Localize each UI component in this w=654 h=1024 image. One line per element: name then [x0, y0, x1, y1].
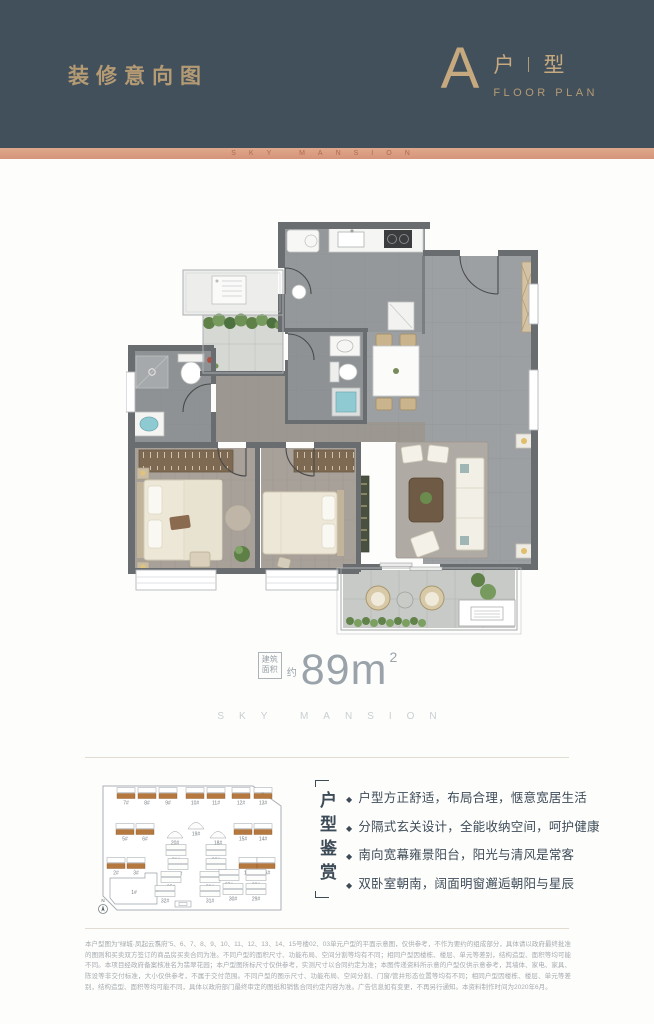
feature-text: 南向宽幕雍景阳台，阳光与清风是常客 [358, 847, 574, 865]
site-building-label: 14# [259, 837, 268, 843]
site-building-label: 11# [212, 801, 220, 807]
site-building-label: 5# [122, 837, 128, 843]
feature-text: 分隔式玄关设计，全能收纳空间，呵护健康 [358, 819, 599, 837]
site-building-label: 31# [206, 899, 215, 905]
feature-list: ◆户型方正舒适，布局合理，惬意宽居生活 ◆分隔式玄关设计，全能收纳空间，呵护健康… [346, 780, 570, 893]
site-building-label: 8# [144, 801, 150, 807]
features-title-text: 户型鉴赏 [314, 791, 339, 887]
site-building-label: 1# [131, 890, 137, 896]
brand-watermark: SKY MANSION [0, 711, 654, 722]
area-label-line1: 建筑 [262, 655, 278, 665]
header: 装修意向图 A 户 型 FLOOR PLAN [0, 0, 654, 148]
bracket-bottom-icon [315, 891, 329, 898]
site-building-label: 7# [123, 801, 129, 807]
site-building-label: 2# [113, 871, 119, 877]
site-building-label: 10# [191, 801, 200, 807]
plan-char-right: 型 [543, 49, 564, 79]
diamond-bullet-icon: ◆ [346, 880, 352, 891]
site-building-label: 15# [239, 837, 248, 843]
bracket-top-icon [315, 780, 329, 787]
poster-page: 装修意向图 A 户 型 FLOOR PLAN SKY MANSION [0, 0, 654, 1024]
area-value: 89m2 [301, 652, 396, 689]
plan-char-left: 户 [493, 49, 514, 79]
site-building-label: 3# [133, 871, 139, 877]
area-number: 89 [301, 646, 351, 694]
site-building-label: 29# [252, 897, 261, 903]
area-label-line2: 面积 [262, 665, 278, 675]
site-building-label: 6# [142, 837, 148, 843]
plan-type-row: 户 型 [493, 49, 598, 79]
divider-bottom [85, 928, 569, 929]
brand-band-text: SKY MANSION [0, 148, 654, 159]
feature-item: ◆分隔式玄关设计，全能收纳空间，呵护健康 [346, 819, 570, 837]
feature-item: ◆双卧室朝南，阔面明窗邂逅朝阳与星辰 [346, 876, 570, 894]
disclaimer-text: 本户型图为“绿城·凤起云翥府”5、6、7、8、9、10、11、12、13、14、… [85, 940, 571, 994]
site-building: 1# [110, 873, 157, 904]
area-approx-label: 约 [287, 664, 297, 679]
site-building-label: 30# [229, 897, 238, 903]
feature-item: ◆户型方正舒适，布局合理，惬意宽居生活 [346, 790, 570, 808]
page-title: 装修意向图 [68, 60, 208, 90]
area-superscript: 2 [389, 649, 398, 665]
feature-item: ◆南向宽幕雍景阳台，阳光与清风是常客 [346, 847, 570, 865]
diamond-bullet-icon: ◆ [346, 823, 352, 834]
site-building-label: 19# [192, 832, 201, 838]
plan-letter: A [441, 40, 480, 98]
plan-subtitle: FLOOR PLAN [493, 87, 598, 99]
divider-top [85, 757, 569, 758]
site-building-label: 32# [161, 899, 170, 905]
features-vertical-title: 户型鉴赏 [312, 780, 339, 898]
plan-divider [528, 57, 529, 72]
plan-type-labels: 户 型 FLOOR PLAN [493, 40, 598, 99]
compass: N [99, 898, 108, 914]
feature-text: 户型方正舒适，布局合理，惬意宽居生活 [358, 790, 587, 808]
area-label-box: 建筑 面积 [258, 652, 282, 679]
diamond-bullet-icon: ◆ [346, 794, 352, 805]
floor-plan-image [126, 220, 556, 652]
features-section: 户型鉴赏 ◆户型方正舒适，布局合理，惬意宽居生活 ◆分隔式玄关设计，全能收纳空间… [312, 780, 570, 904]
diamond-bullet-icon: ◆ [346, 851, 352, 862]
site-plan-map: 7#8#9#10#11#12#13#5#6#20#19#18#15#14#21#… [95, 770, 295, 920]
feature-text: 双卧室朝南，阔面明窗邂逅朝阳与星辰 [358, 876, 574, 894]
area-unit: m [351, 646, 388, 694]
site-building-label: 13# [259, 801, 268, 807]
compass-label: N [101, 898, 104, 903]
area-figure: 建筑 面积 约 89m2 [0, 652, 654, 689]
site-building-label: 12# [237, 801, 246, 807]
site-building-label: 9# [165, 801, 171, 807]
brand-band: SKY MANSION [0, 148, 654, 159]
plan-type-block: A 户 型 FLOOR PLAN [441, 40, 598, 99]
